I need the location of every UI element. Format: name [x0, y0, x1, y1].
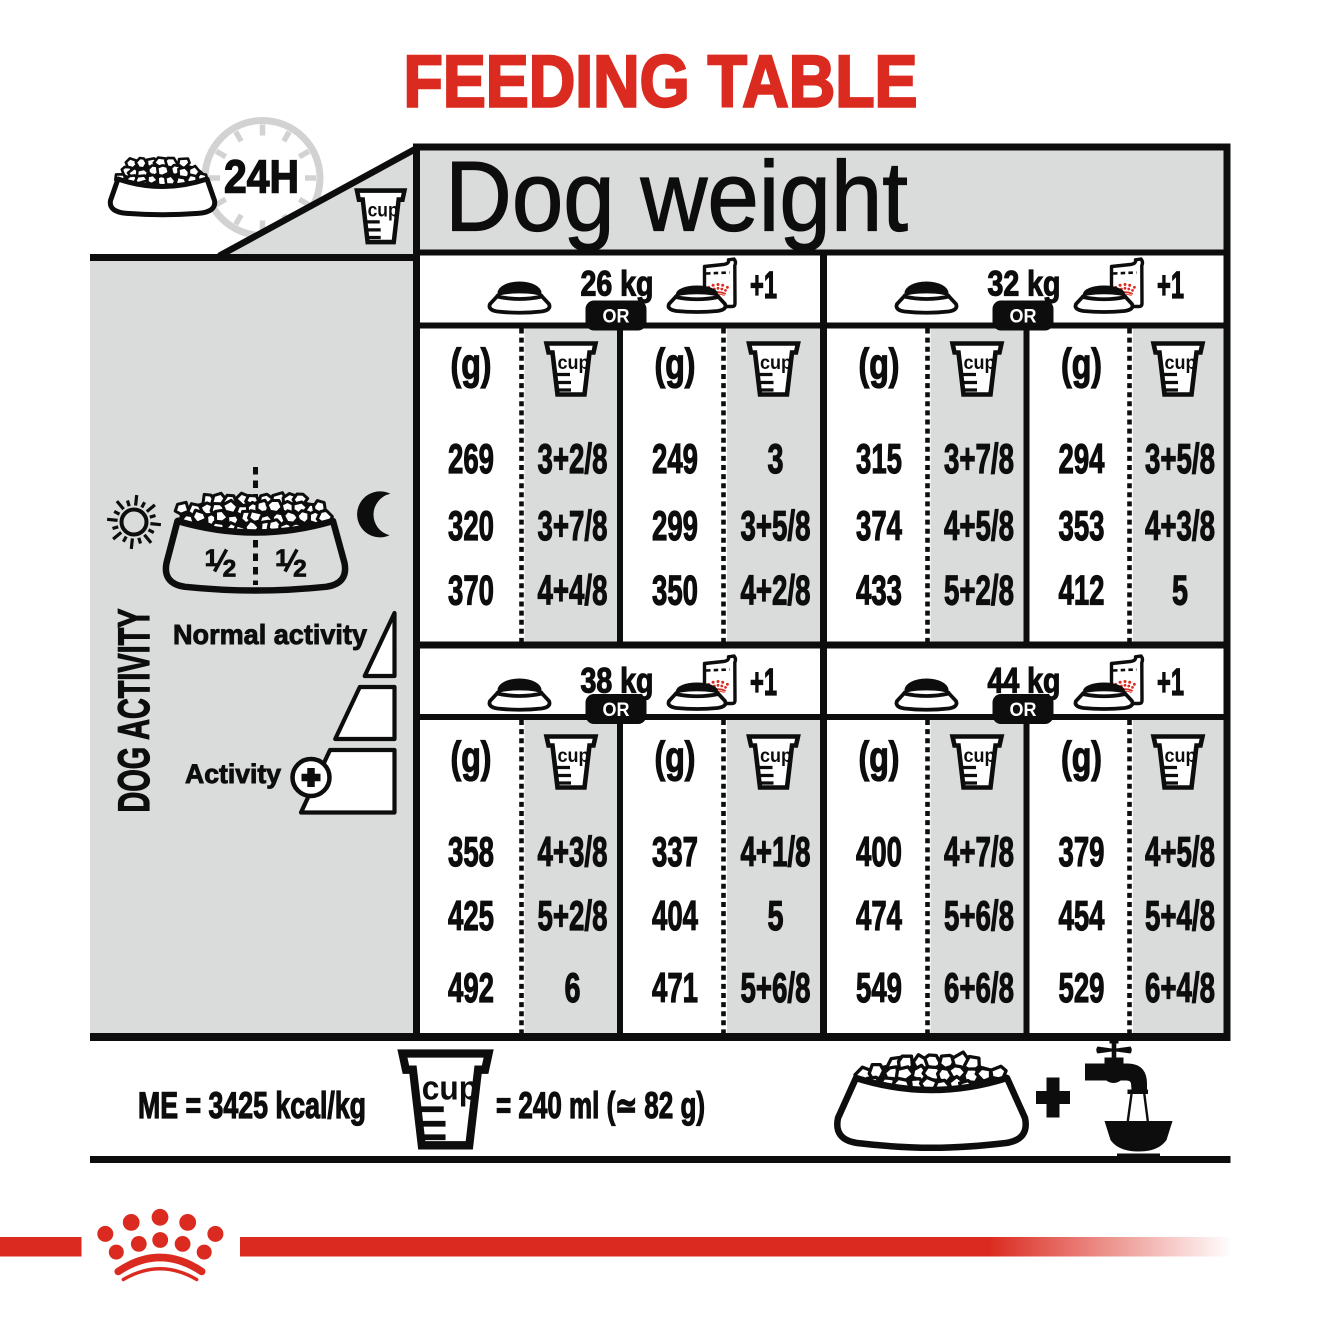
svg-text:4+1/8: 4+1/8: [741, 828, 811, 875]
svg-text:= 240 ml (≃ 82 g): = 240 ml (≃ 82 g): [496, 1085, 705, 1126]
svg-text:3+2/8: 3+2/8: [538, 435, 608, 482]
svg-text:cup: cup: [1165, 746, 1197, 767]
svg-text:404: 404: [652, 892, 698, 939]
svg-text:299: 299: [652, 502, 698, 549]
svg-text:(g): (g): [655, 733, 696, 782]
svg-text:5+4/8: 5+4/8: [1145, 892, 1215, 939]
svg-text:294: 294: [1059, 435, 1105, 482]
svg-text:(g): (g): [1061, 733, 1102, 782]
svg-text:350: 350: [652, 567, 698, 614]
svg-text:4+5/8: 4+5/8: [944, 502, 1014, 549]
svg-text:2: 2: [293, 556, 307, 583]
svg-text:4+7/8: 4+7/8: [944, 828, 1014, 875]
svg-text:5: 5: [1172, 567, 1188, 614]
svg-text:cup: cup: [964, 353, 996, 374]
svg-text:32 kg: 32 kg: [988, 264, 1061, 304]
svg-text:(g): (g): [451, 733, 492, 782]
svg-text:400: 400: [856, 828, 902, 875]
svg-text:3: 3: [768, 435, 784, 482]
svg-text:5+2/8: 5+2/8: [538, 892, 608, 939]
svg-text:+1: +1: [750, 265, 777, 307]
svg-text:5+6/8: 5+6/8: [741, 964, 811, 1011]
svg-text:cup: cup: [1165, 353, 1197, 374]
svg-text:315: 315: [856, 435, 902, 482]
svg-text:320: 320: [448, 502, 494, 549]
svg-text:6+4/8: 6+4/8: [1145, 964, 1215, 1011]
svg-text:cup: cup: [760, 353, 792, 374]
svg-text:(g): (g): [859, 340, 900, 389]
svg-text:4+2/8: 4+2/8: [741, 567, 811, 614]
svg-text:454: 454: [1059, 892, 1105, 939]
svg-text:249: 249: [652, 435, 698, 482]
svg-text:DOG ACTIVITY: DOG ACTIVITY: [110, 609, 159, 813]
svg-text:471: 471: [652, 964, 698, 1011]
svg-text:5+2/8: 5+2/8: [944, 567, 1014, 614]
svg-text:OR: OR: [603, 306, 630, 328]
svg-text:cup: cup: [368, 199, 399, 220]
svg-text:2: 2: [223, 556, 237, 583]
svg-text:4+3/8: 4+3/8: [538, 828, 608, 875]
svg-text:cup: cup: [558, 746, 590, 767]
svg-text:24H: 24H: [224, 151, 299, 203]
svg-text:370: 370: [448, 567, 494, 614]
svg-text:Activity: Activity: [185, 759, 281, 789]
svg-text:3+7/8: 3+7/8: [944, 435, 1014, 482]
svg-text:269: 269: [448, 435, 494, 482]
svg-text:Normal activity: Normal activity: [173, 619, 367, 650]
svg-text:529: 529: [1059, 964, 1105, 1011]
svg-text:492: 492: [448, 964, 494, 1011]
svg-text:FEEDING TABLE: FEEDING TABLE: [404, 42, 918, 123]
svg-text:379: 379: [1059, 828, 1105, 875]
svg-text:OR: OR: [603, 699, 630, 721]
svg-text:cup: cup: [558, 353, 590, 374]
svg-text:(g): (g): [451, 340, 492, 389]
svg-text:374: 374: [856, 502, 902, 549]
svg-text:cup: cup: [422, 1069, 478, 1107]
svg-text:433: 433: [856, 567, 902, 614]
svg-text:cup: cup: [964, 746, 996, 767]
svg-text:3+5/8: 3+5/8: [741, 502, 811, 549]
svg-text:4+5/8: 4+5/8: [1145, 828, 1215, 875]
svg-text:Dog weight: Dog weight: [445, 141, 908, 252]
svg-text:3+5/8: 3+5/8: [1145, 435, 1215, 482]
svg-text:549: 549: [856, 964, 902, 1011]
svg-text:4+3/8: 4+3/8: [1145, 502, 1215, 549]
svg-text:4+4/8: 4+4/8: [538, 567, 608, 614]
svg-text:6+6/8: 6+6/8: [944, 964, 1014, 1011]
svg-text:+1: +1: [750, 662, 777, 704]
svg-text:474: 474: [856, 892, 902, 939]
svg-text:6: 6: [565, 964, 581, 1011]
svg-text:OR: OR: [1010, 306, 1037, 328]
svg-text:5+6/8: 5+6/8: [944, 892, 1014, 939]
svg-text:337: 337: [652, 828, 698, 875]
svg-text:(g): (g): [859, 733, 900, 782]
svg-text:(g): (g): [1061, 340, 1102, 389]
svg-text:26 kg: 26 kg: [581, 264, 654, 304]
svg-text:OR: OR: [1010, 699, 1037, 721]
svg-text:412: 412: [1059, 567, 1105, 614]
svg-text:353: 353: [1059, 502, 1105, 549]
svg-text:+1: +1: [1157, 265, 1184, 307]
svg-text:+1: +1: [1157, 662, 1184, 704]
svg-text:358: 358: [448, 828, 494, 875]
svg-text:425: 425: [448, 892, 494, 939]
svg-text:3+7/8: 3+7/8: [538, 502, 608, 549]
svg-text:ME = 3425 kcal/kg: ME = 3425 kcal/kg: [138, 1085, 366, 1126]
svg-text:cup: cup: [760, 746, 792, 767]
svg-text:5: 5: [768, 892, 784, 939]
svg-text:(g): (g): [655, 340, 696, 389]
